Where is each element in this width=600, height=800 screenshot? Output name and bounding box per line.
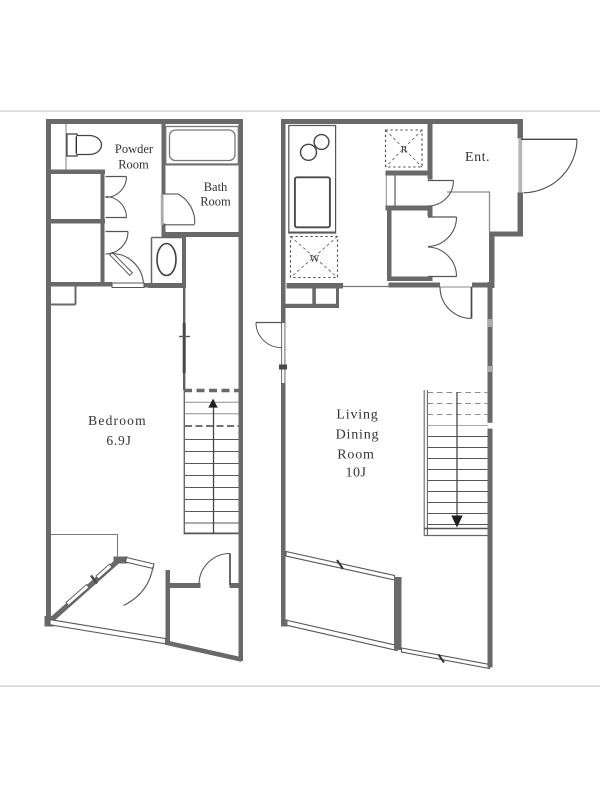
svg-text:10J: 10J	[346, 466, 367, 481]
svg-text:W: W	[310, 254, 320, 265]
svg-text:Room: Room	[337, 448, 374, 463]
svg-text:Room: Room	[118, 158, 149, 172]
svg-text:Bedroom: Bedroom	[88, 413, 147, 428]
svg-text:Room: Room	[200, 195, 231, 209]
svg-text:Living: Living	[336, 408, 378, 423]
svg-text:R: R	[401, 146, 408, 156]
svg-text:Powder: Powder	[115, 142, 154, 156]
svg-text:Ent.: Ent.	[465, 150, 490, 165]
svg-text:6.9J: 6.9J	[106, 433, 131, 448]
svg-text:Dining: Dining	[336, 428, 380, 443]
svg-text:Bath: Bath	[204, 180, 228, 194]
